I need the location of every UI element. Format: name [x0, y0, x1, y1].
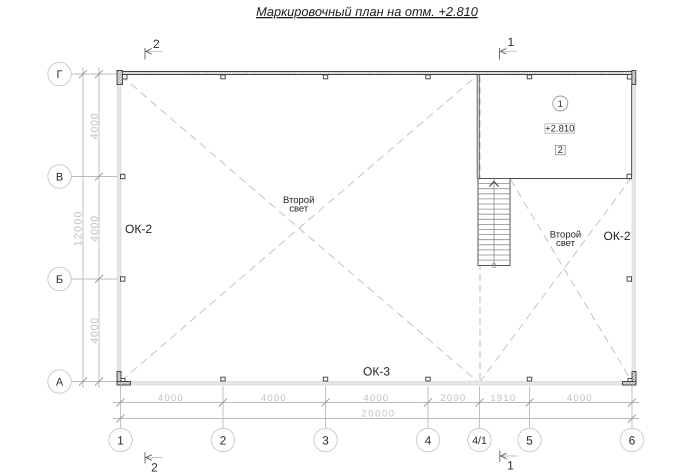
- svg-text:4000: 4000: [89, 113, 101, 140]
- svg-text:4/1: 4/1: [472, 435, 487, 447]
- svg-text:4000: 4000: [89, 317, 101, 344]
- svg-text:12000: 12000: [73, 210, 85, 246]
- svg-text:4000: 4000: [158, 393, 184, 404]
- svg-text:1: 1: [117, 433, 124, 447]
- svg-text:2: 2: [153, 37, 160, 51]
- svg-text:1: 1: [507, 459, 514, 473]
- svg-text:20000: 20000: [361, 409, 395, 420]
- svg-text:В: В: [56, 172, 63, 184]
- svg-text:+2.810: +2.810: [545, 124, 574, 135]
- svg-text:свет: свет: [556, 238, 576, 249]
- svg-text:5: 5: [526, 433, 533, 447]
- svg-text:6: 6: [629, 433, 636, 447]
- svg-text:4000: 4000: [261, 393, 287, 404]
- svg-text:Г: Г: [57, 69, 63, 81]
- svg-text:3: 3: [322, 433, 329, 447]
- svg-text:1: 1: [558, 99, 563, 110]
- svg-text:ОК-2: ОК-2: [604, 229, 631, 243]
- svg-text:Б: Б: [56, 274, 63, 286]
- svg-text:4000: 4000: [89, 215, 101, 242]
- svg-text:ОК-2: ОК-2: [125, 222, 152, 236]
- svg-text:4000: 4000: [363, 393, 389, 404]
- svg-text:2: 2: [558, 145, 563, 156]
- svg-text:свет: свет: [289, 204, 309, 215]
- svg-text:4000: 4000: [567, 393, 593, 404]
- svg-text:2: 2: [151, 461, 158, 474]
- svg-text:1: 1: [508, 35, 515, 49]
- svg-text:4: 4: [425, 433, 432, 447]
- svg-text:2090: 2090: [440, 393, 466, 404]
- svg-text:А: А: [56, 377, 64, 389]
- svg-text:1910: 1910: [490, 393, 516, 404]
- svg-text:Маркировочный план на отм. +2.: Маркировочный план на отм. +2.810: [256, 4, 479, 19]
- svg-text:2: 2: [220, 433, 227, 447]
- svg-text:ОК-3: ОК-3: [363, 365, 390, 379]
